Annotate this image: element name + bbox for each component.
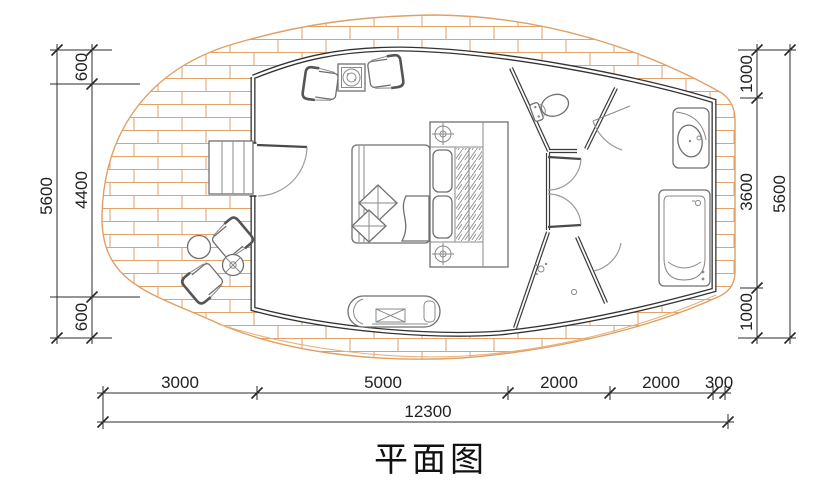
dim-bottom-seg-5000: 5000 xyxy=(364,373,402,392)
dimension-bottom: 3000 5000 2000 2000 300 12300 xyxy=(97,373,734,429)
outdoor-table xyxy=(188,236,211,259)
outdoor-parasol-table xyxy=(223,255,244,276)
dimension-right: 1000 3600 1000 5600 xyxy=(737,44,796,344)
headboard-wardrobe-unit xyxy=(430,122,508,267)
double-bed xyxy=(352,145,430,243)
dim-right-overall: 5600 xyxy=(770,175,789,213)
dim-left-overall: 5600 xyxy=(37,177,56,215)
lounge-armchair-left xyxy=(302,67,339,103)
side-table-with-plant xyxy=(338,64,365,91)
dim-right-seg-1000-bottom: 1000 xyxy=(737,293,756,331)
washbasin-counter xyxy=(673,108,709,168)
floor-plan-svg: 5600 600 4400 600 1000 3600 1000 5600 30… xyxy=(0,0,837,496)
drawing-title: 平面图 xyxy=(374,441,488,479)
pillow-2 xyxy=(433,196,452,238)
bathtub xyxy=(659,190,710,286)
dim-right-seg-1000-top: 1000 xyxy=(737,55,756,93)
entrance-steps xyxy=(209,141,253,194)
pillow-1 xyxy=(433,150,452,192)
dim-left-seg-600-bottom: 600 xyxy=(72,303,91,331)
bed-blanket-fold xyxy=(402,196,429,241)
dim-left-seg-600-top: 600 xyxy=(72,53,91,81)
dim-bottom-seg-3000: 3000 xyxy=(161,373,199,392)
dim-bottom-seg-2000-a: 2000 xyxy=(540,373,578,392)
dim-bottom-overall: 12300 xyxy=(404,402,451,421)
dim-bottom-seg-300: 300 xyxy=(705,373,733,392)
lounge-armchair-right xyxy=(367,55,404,91)
dim-right-seg-3600: 3600 xyxy=(737,173,756,211)
dim-left-seg-4400: 4400 xyxy=(72,171,91,209)
floor-plan-canvas: 5600 600 4400 600 1000 3600 1000 5600 30… xyxy=(0,0,837,496)
tv-console xyxy=(348,296,440,327)
dim-bottom-seg-2000-b: 2000 xyxy=(642,373,680,392)
